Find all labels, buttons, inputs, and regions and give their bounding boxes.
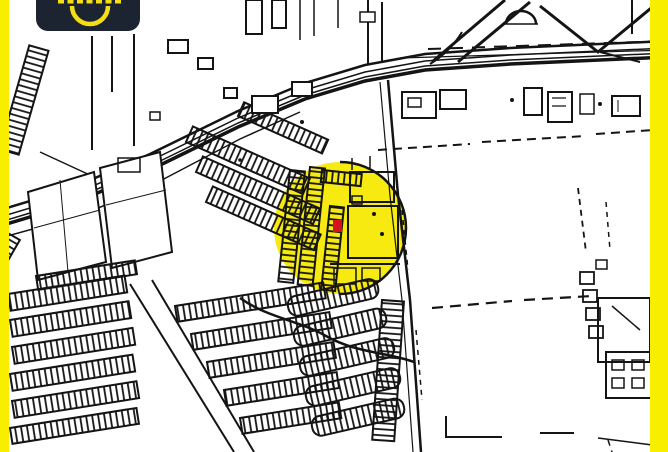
frame-right — [650, 0, 668, 452]
frame-left — [0, 0, 9, 452]
map-screenshot[interactable] — [0, 0, 668, 452]
brand-logo — [36, 0, 140, 31]
location-marker[interactable] — [333, 220, 342, 232]
logo-badge — [36, 0, 140, 31]
map-image — [0, 0, 668, 452]
